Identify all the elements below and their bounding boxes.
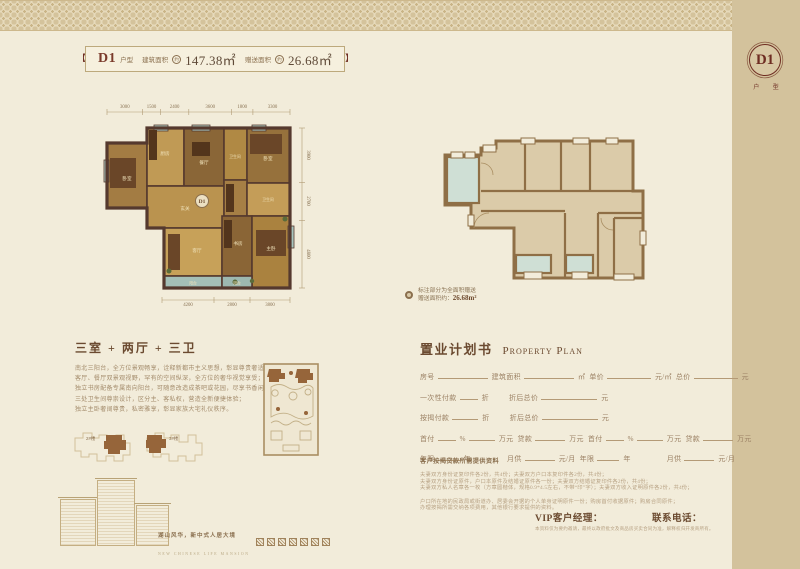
form-label: 元 [742,373,749,381]
vip-manager-label: VIP客户经理： [535,510,603,524]
dim-label: 3600 [205,105,215,110]
property-plan-title-cn: 置业计划书 [420,342,493,357]
blank-field [469,434,495,441]
highlighted-buildings [104,435,166,454]
dim-label: 4200 [183,303,193,308]
description-line: 独立书房配备专属南向阳台，可随意改造成茶吧或花园，尽享书香闲逸心情； [75,385,395,393]
seal-stamp-icon [311,538,320,547]
blank-field [703,434,733,441]
form-label: 折后总价 [509,394,538,402]
form-label: 首付 [420,435,435,443]
form-label: 折 [482,394,489,402]
dim-label: 2400 [170,105,180,110]
room-label: 阳台 [189,281,197,286]
form-label: % [628,435,634,443]
brand-slogan: 湖山风华，新中式人居大境 NEW CHINESE LIFE MANSION [158,524,330,560]
unit-title-box: D1 户型 建筑面积 约 147.38㎡ 赠送面积 约 26.68㎡ [85,46,345,72]
seal-stamp-icon [267,538,276,547]
building-label: 3#楼 [169,435,179,442]
form-row-onetime: 一次性付款 折 折后总价 元 [420,393,726,403]
description-line: 南北三阳台，全方位景观畅享，诠释新都市主义思想，彰显尊贵奢适； [75,365,395,373]
layout-vertical-text: 三室 + 两厅 + 三卫 [758,100,800,290]
disclaimer-text: 本资料仅为要约邀请，最终以政府批文及商品房买卖合同为准，解释权归开发商所有。 [535,526,714,532]
note-text: 标注部分为全面积赠送 赠送面积约：26.68m² [418,288,476,303]
property-plan-title: 置业计划书 Property Plan [420,339,726,359]
tower-left [60,499,96,546]
room-label: 卫生间 [262,197,274,202]
tower-center [97,480,135,546]
side-band: D1 户 型 三室 + 两厅 + 三卫 [732,0,800,569]
outline-floorplan [418,123,688,313]
form-label: 贷款 [685,435,700,443]
form-label: 一次性付款 [420,394,457,402]
blank-field [541,393,597,400]
mortgage-docs-heading: 客户按揭贷款所需提供资料 [420,456,720,465]
note-bullet-icon [405,291,413,299]
rendered-floorplan: 3000 1500 2400 3600 1800 3300 3900 2700 … [92,98,332,318]
layout-title: 三室 + 两厅 + 三卫 [75,339,395,356]
seal-stamp-icon [256,538,265,547]
room-label: 卧室 [263,155,273,162]
form-label: ㎡ [578,373,585,381]
form-label: 首付 [588,435,603,443]
blank-field [438,372,488,379]
layout-description: 三室 + 两厅 + 三卫 南北三阳台，全方位景观畅享，诠释新都市主义思想，彰显尊… [75,339,395,414]
dim-label: 2800 [227,303,237,308]
gift-area-note: 标注部分为全面积赠送 赠送面积约：26.68m² [405,288,476,303]
dim-label: 3800 [265,303,275,308]
blank-field [607,372,651,379]
form-label: % [460,435,466,443]
room-label: 卧室 [122,175,132,182]
plan-unit-badge: D1 [196,195,209,208]
seal-stamp-icon [322,538,331,547]
seal-stamp-icon [289,538,298,547]
blank-field [452,413,478,420]
slogan-cn: 湖山风华，新中式人居大境 [158,533,236,539]
form-row-price: 房号 建筑面积 ㎡ 单价 元/㎡ 总价 元 [420,372,726,382]
unit-badge-text: D1 [756,52,774,69]
form-label: 元 [602,414,609,422]
contact-phone-label: 联系电话： [652,510,702,524]
room-label: 玄关 [180,205,190,212]
slogan-en: NEW CHINESE LIFE MANSION [158,552,250,556]
dim-label: 3900 [305,150,310,160]
seal-stamps [256,538,331,547]
form-label: 贷款 [518,435,533,443]
site-plan-thumbnail [263,363,319,456]
form-label: 万元 [499,435,514,443]
building-illustration [55,478,173,548]
dim-label: 3000 [120,105,130,110]
room-label: 主卧 [266,245,276,252]
room-label: 厨房 [160,150,170,157]
approx-mark: 约 [275,55,284,64]
mortgage-docs-section: 客户按揭贷款所需提供资料 夫妻双方身份证复印件各2份，共4份；夫妻双方户口本复印… [420,456,720,512]
form-label: 万元 [667,435,682,443]
note-line-2-label: 赠送面积约： [418,296,453,302]
area-value: 147.38㎡ [185,50,236,69]
room-label: 餐厅 [199,159,209,166]
unit-code: D1 [98,51,116,67]
form-label: 折 [482,414,489,422]
form-label: 房号 [420,373,435,381]
svg-text:D1: D1 [199,199,206,205]
form-label: 元/月 [718,455,735,463]
room-label: 书房 [233,240,243,247]
dim-label: 3300 [268,105,278,110]
description-line: 三处卫生间尊崇设计，区分主、客私权，营造全新便捷体验； [75,396,395,404]
mortgage-docs-line: 夫妻双方私人名章各一枚（方章圆楷体，规格0.9*4.5左右，不带“印”字）；夫妻… [420,485,720,492]
form-label: 单价 [589,373,604,381]
area-label: 建筑面积 [142,54,168,64]
room-label: 卫生间 [229,154,241,159]
form-label: 万元 [569,435,584,443]
form-label: 元 [601,394,608,402]
unit-badge: D1 [749,44,781,76]
building-label: 2#楼 [86,435,96,442]
dim-label: 2700 [305,196,310,206]
form-label: 元/㎡ [655,373,672,381]
form-label: 总价 [676,373,691,381]
building-footprints: 2#楼 3#楼 [73,428,238,466]
form-label: 建筑面积 [492,373,521,381]
seal-stamp-icon [300,538,309,547]
ornamental-pattern-band [0,0,733,31]
gift-area-label: 赠送面积 [245,54,271,64]
mortgage-docs-line: 夫妻双方身份证复印件各2份，共4份；夫妻双方户口本复印件各2份，共4份； [420,472,720,479]
note-line-2-value: 26.68m² [453,294,477,302]
room-label: 阳台 [233,281,241,286]
form-label: 按揭付款 [420,414,449,422]
gift-area-value: 26.68㎡ [288,50,332,69]
blank-field [438,434,456,441]
approx-mark: 约 [172,55,181,64]
unit-code-suffix: 户型 [120,54,133,64]
blank-field [606,434,624,441]
property-plan-title-en: Property Plan [503,345,583,357]
blank-field [637,434,663,441]
form-row-mortgage: 按揭付款 折 折后总价 元 [420,413,726,423]
description-line: 客厅、餐厅双景观视野，罕有的空间纵深，全方位的奢华视觉享受； [75,375,395,383]
blank-field [535,434,565,441]
description-line: 独立主卧奢阔尊贵，私密雅享，彰显家族大宅礼仪秩序。 [75,406,395,414]
property-plan-section: 置业计划书 Property Plan 房号 建筑面积 ㎡ 单价 元/㎡ 总价 … [420,339,726,464]
brochure-page: 【 】 D1 户型 建筑面积 约 147.38㎡ 赠送面积 约 26.68㎡ D… [0,0,800,569]
form-label: 折后总价 [510,414,539,422]
seal-stamp-icon [278,538,287,547]
unit-badge-subtitle: 户 型 [732,82,800,91]
blank-field [524,372,574,379]
form-label: 万元 [737,435,752,443]
dim-label: 1800 [237,105,247,110]
room-label: 客厅 [192,247,202,254]
blank-field [694,372,738,379]
blank-field [542,413,598,420]
dim-label: 1500 [147,105,157,110]
form-row-downpayment: 首付 % 万元 贷款 万元 首付 % 万元 贷款 万元 [420,434,726,444]
blank-field [460,393,478,400]
dim-label: 4800 [305,249,310,259]
label-box-right-ornament-icon: 】 [345,51,354,64]
